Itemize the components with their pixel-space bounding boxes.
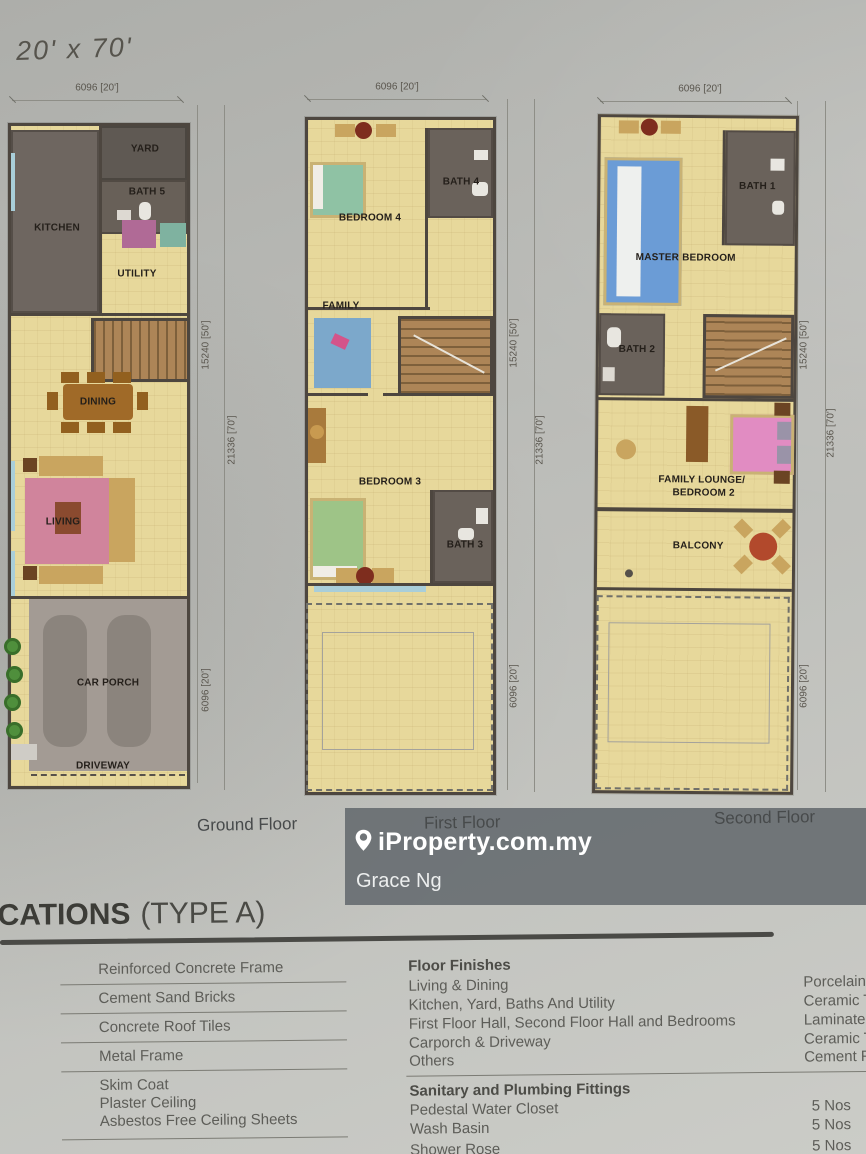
floor-finishes-heading: Floor Finishes	[408, 957, 511, 975]
sanitary-label: Wash Basin	[410, 1120, 490, 1138]
spec-divider	[60, 981, 346, 985]
spec-item: Asbestos Free Ceiling Sheets	[100, 1111, 298, 1130]
spec-divider	[61, 1010, 347, 1014]
finish-label: Carporch & Driveway	[409, 1033, 551, 1051]
finish-label: Others	[409, 1052, 454, 1069]
spec-item: Reinforced Concrete Frame	[98, 959, 283, 978]
ground-floor-name: Ground Floor	[197, 814, 298, 836]
finish-value: Porcelain	[803, 973, 866, 991]
sanitary-value: 5 Nos	[812, 1137, 851, 1154]
second-floor-name: Second Floor	[714, 807, 815, 829]
first-floor-name: First Floor	[424, 812, 501, 833]
spec-item: Metal Frame	[99, 1047, 183, 1065]
spec-item: Cement Sand Bricks	[98, 989, 235, 1007]
finish-label: First Floor Hall, Second Floor Hall and …	[409, 1012, 736, 1032]
location-pin-icon	[353, 828, 374, 861]
finish-label: Living & Dining	[408, 977, 508, 995]
sanitary-label: Shower Rose	[410, 1141, 500, 1154]
finish-value: Ceramic T	[804, 1030, 866, 1048]
sanitary-label: Pedestal Water Closet	[410, 1100, 559, 1119]
sanitary-value: 5 Nos	[812, 1097, 851, 1114]
spec-divider	[61, 1039, 347, 1043]
finish-value: Laminate	[804, 1011, 866, 1029]
heading-rule	[0, 932, 774, 945]
watermark-agent-name: Grace Ng	[356, 870, 442, 893]
spec-item: Plaster Ceiling	[100, 1094, 197, 1112]
finish-label: Kitchen, Yard, Baths And Utility	[409, 995, 615, 1014]
sanitary-value: 5 Nos	[812, 1116, 851, 1133]
photo-canvas: 20' x 70' 6096 [20'] 15240 [50'] 21336 […	[0, 0, 866, 1154]
spec-divider	[406, 1071, 866, 1077]
finish-value: Cement F	[804, 1048, 866, 1066]
spec-divider	[61, 1068, 347, 1072]
sanitary-heading: Sanitary and Plumbing Fittings	[409, 1080, 630, 1099]
specifications-heading-type: (TYPE A)	[140, 896, 265, 930]
spec-item: Concrete Roof Tiles	[99, 1018, 231, 1036]
spec-item: Skim Coat	[99, 1076, 168, 1094]
specifications-heading: CATIONS(TYPE A)	[0, 896, 266, 933]
spec-divider	[62, 1136, 348, 1140]
finish-value: Ceramic T	[803, 992, 866, 1010]
specifications-heading-bold: CATIONS	[0, 898, 131, 932]
specifications-section: CATIONS(TYPE A) Reinforced Concrete Fram…	[0, 0, 866, 1154]
